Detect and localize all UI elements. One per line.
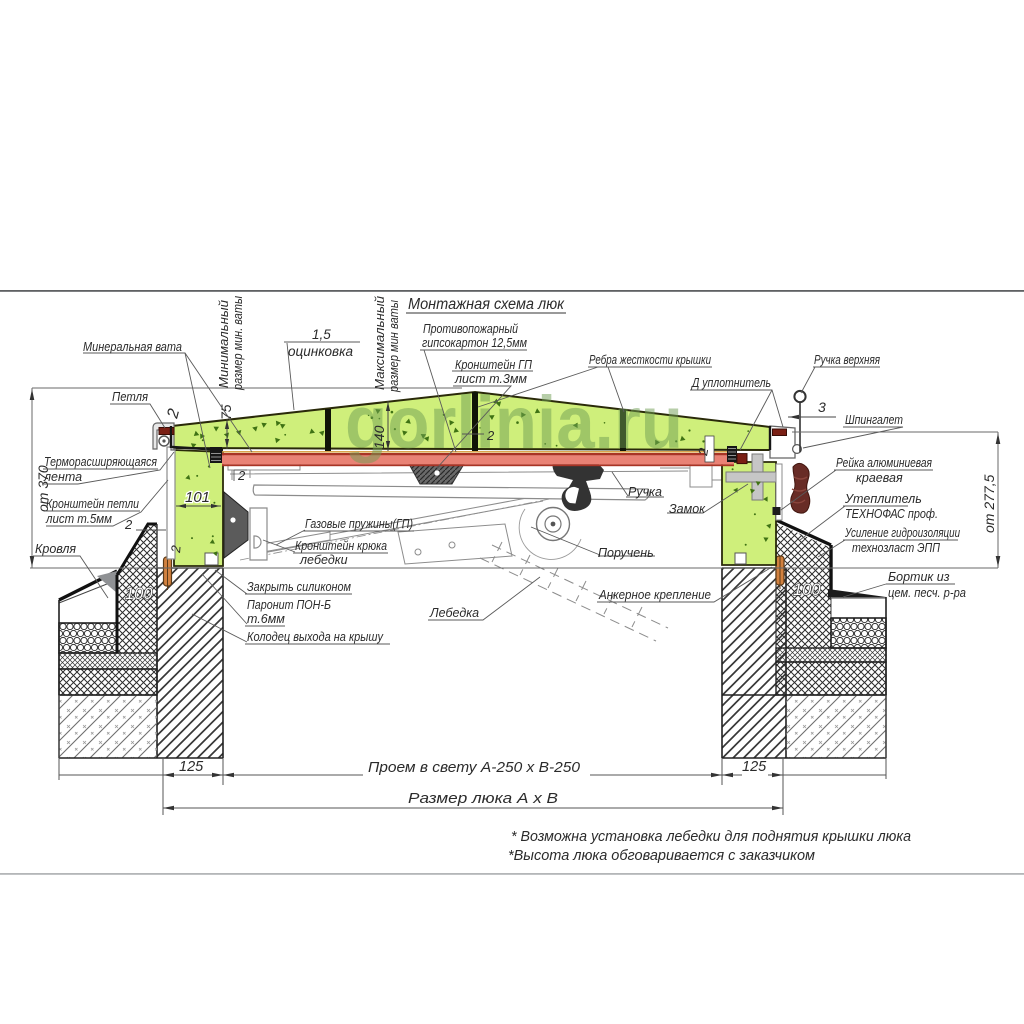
svg-text:цем. песч. р-ра: цем. песч. р-ра xyxy=(888,586,966,600)
svg-text:Усиление гидроизоляции: Усиление гидроизоляции xyxy=(844,526,960,540)
svg-text:лист т.3мм: лист т.3мм xyxy=(454,372,527,386)
svg-text:Минеральная вата: Минеральная вата xyxy=(83,340,182,354)
svg-text:125: 125 xyxy=(742,759,767,775)
svg-text:2: 2 xyxy=(124,517,133,532)
svg-text:Петля: Петля xyxy=(112,390,148,404)
svg-text:размер мин. ваты: размер мин. ваты xyxy=(231,296,245,391)
svg-text:Кровля: Кровля xyxy=(35,542,76,556)
svg-text:Шпингалет: Шпингалет xyxy=(845,413,903,427)
svg-text:Замок: Замок xyxy=(669,502,706,516)
svg-text:gorlinia.ru: gorlinia.ru xyxy=(345,381,683,464)
svg-text:Лебедка: Лебедка xyxy=(429,606,479,620)
svg-text:*Высота люка обговаривается с: *Высота люка обговаривается с заказчиком xyxy=(508,848,815,864)
svg-text:101: 101 xyxy=(185,489,210,506)
svg-text:140: 140 xyxy=(371,425,387,449)
svg-text:от 277,5: от 277,5 xyxy=(981,474,997,533)
svg-text:Ребра жесткости крышки: Ребра жесткости крышки xyxy=(589,353,711,367)
svg-text:Колодец выхода на крышу: Колодец выхода на крышу xyxy=(247,630,384,644)
svg-text:Размер люка А х В: Размер люка А х В xyxy=(408,791,558,807)
svg-text:Кронштейн крюка: Кронштейн крюка xyxy=(295,539,387,553)
svg-text:100: 100 xyxy=(793,581,821,599)
svg-text:Рейка алюминиевая: Рейка алюминиевая xyxy=(836,456,932,470)
svg-text:Закрыть силиконом: Закрыть силиконом xyxy=(247,580,351,594)
svg-text:гипсокартон 12,5мм: гипсокартон 12,5мм xyxy=(422,336,527,350)
svg-text:* Возможна установка лебедки д: * Возможна установка лебедки для подняти… xyxy=(511,829,911,845)
svg-text:технозласт ЭПП: технозласт ЭПП xyxy=(852,541,941,555)
svg-text:Противопожарный: Противопожарный xyxy=(423,322,518,336)
svg-text:размер мин ваты: размер мин ваты xyxy=(387,300,401,393)
svg-text:Поручень: Поручень xyxy=(598,546,654,560)
svg-text:100: 100 xyxy=(125,585,153,603)
svg-text:Кронштейн петли: Кронштейн петли xyxy=(46,497,139,511)
svg-text:Монтажная схема люк: Монтажная схема люк xyxy=(408,296,565,313)
svg-text:Ручка верхняя: Ручка верхняя xyxy=(814,353,880,367)
svg-text:оцинковка: оцинковка xyxy=(288,344,353,359)
svg-text:Анкерное крепление: Анкерное крепление xyxy=(598,588,711,602)
svg-text:Проем в свету А-250 х В-250: Проем в свету А-250 х В-250 xyxy=(368,760,580,776)
svg-text:3: 3 xyxy=(818,399,826,415)
svg-text:краевая: краевая xyxy=(856,471,903,485)
svg-text:Бортик из: Бортик из xyxy=(888,570,950,584)
svg-text:Терморасширяющаяся: Терморасширяющаяся xyxy=(44,455,157,469)
svg-text:75: 75 xyxy=(218,404,234,420)
svg-text:лист т.5мм: лист т.5мм xyxy=(45,512,112,526)
svg-text:лента: лента xyxy=(43,470,82,484)
svg-text:Максимальный: Максимальный xyxy=(373,296,387,390)
svg-text:Кронштейн ГП: Кронштейн ГП xyxy=(455,358,533,372)
svg-text:ТЕХНОФАС проф.: ТЕХНОФАС проф. xyxy=(845,507,938,521)
svg-text:125: 125 xyxy=(179,759,204,775)
svg-text:Газовые пружины(ГП): Газовые пружины(ГП) xyxy=(305,517,413,531)
svg-text:2: 2 xyxy=(486,428,495,443)
svg-text:Утеплитель: Утеплитель xyxy=(844,492,922,506)
svg-text:Ручка: Ручка xyxy=(628,485,662,499)
svg-text:т.6мм: т.6мм xyxy=(247,612,285,626)
svg-text:лебедки: лебедки xyxy=(299,553,348,567)
svg-text:1,5: 1,5 xyxy=(312,327,331,342)
svg-text:Минимальный: Минимальный xyxy=(217,300,231,388)
svg-text:Д уплотнитель: Д уплотнитель xyxy=(690,376,771,390)
svg-text:Паронит ПОН-Б: Паронит ПОН-Б xyxy=(247,598,331,612)
